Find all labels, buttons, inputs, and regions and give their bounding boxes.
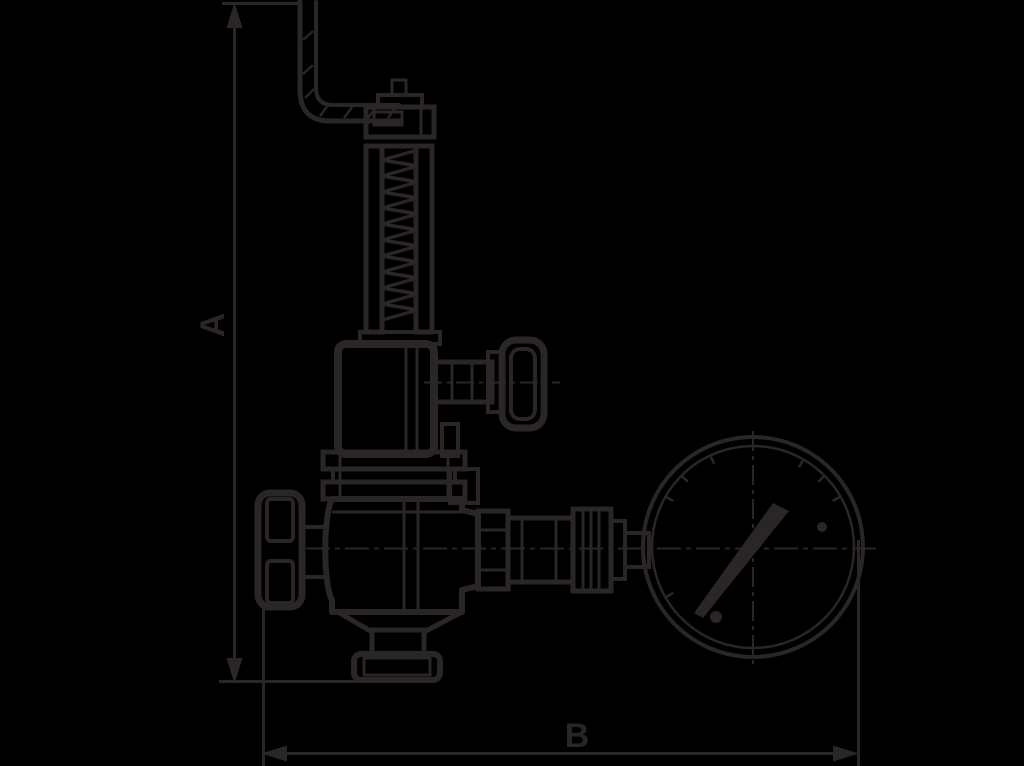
- spindle-cap-assembly: [366, 80, 434, 137]
- bonnet: [338, 344, 434, 454]
- bottom-outlet: [338, 612, 462, 680]
- hex-nut: [478, 511, 508, 589]
- gauge-needle: [694, 503, 789, 618]
- dimension-a-label: A: [194, 313, 232, 338]
- test-knob: [502, 340, 544, 428]
- outlet-pipe: [372, 630, 424, 654]
- yoke-right-column: [416, 146, 432, 332]
- dimension-b-label: B: [565, 717, 590, 755]
- yoke-left-column: [366, 146, 382, 332]
- test-knob-assembly: [434, 340, 544, 428]
- gauge-dial-dot-right: [817, 522, 827, 532]
- outlet-flange-inner: [364, 658, 430, 675]
- gauge-connection-fitting: [478, 509, 649, 591]
- relief-lever: [300, 2, 399, 121]
- gauge-dial-dot-left: [710, 611, 722, 623]
- dimension-b: B: [261, 540, 859, 766]
- handwheel-window-bottom: [267, 561, 293, 603]
- spindle-tip: [392, 80, 406, 95]
- valve-body: [302, 499, 478, 612]
- handwheel: [258, 493, 302, 607]
- body-outline: [325, 499, 478, 612]
- spring-housing: [360, 146, 440, 344]
- handwheel-window-top: [267, 499, 293, 541]
- drawing-canvas: A B: [0, 0, 1024, 766]
- mid-flange: [323, 424, 478, 503]
- dimension-a-arrow-up-icon: [227, 2, 243, 28]
- safety-valve-with-pressure-gauge-drawing: A B: [0, 0, 1024, 766]
- test-knob-inner: [511, 349, 535, 419]
- dimension-b-arrow-right-icon: [833, 746, 859, 762]
- bonnet-outline: [338, 344, 434, 454]
- lever-inner-edge: [316, 2, 399, 105]
- coil-spring: [382, 150, 418, 320]
- handwheel-rim: [258, 493, 302, 607]
- fitting-barrel: [508, 518, 573, 582]
